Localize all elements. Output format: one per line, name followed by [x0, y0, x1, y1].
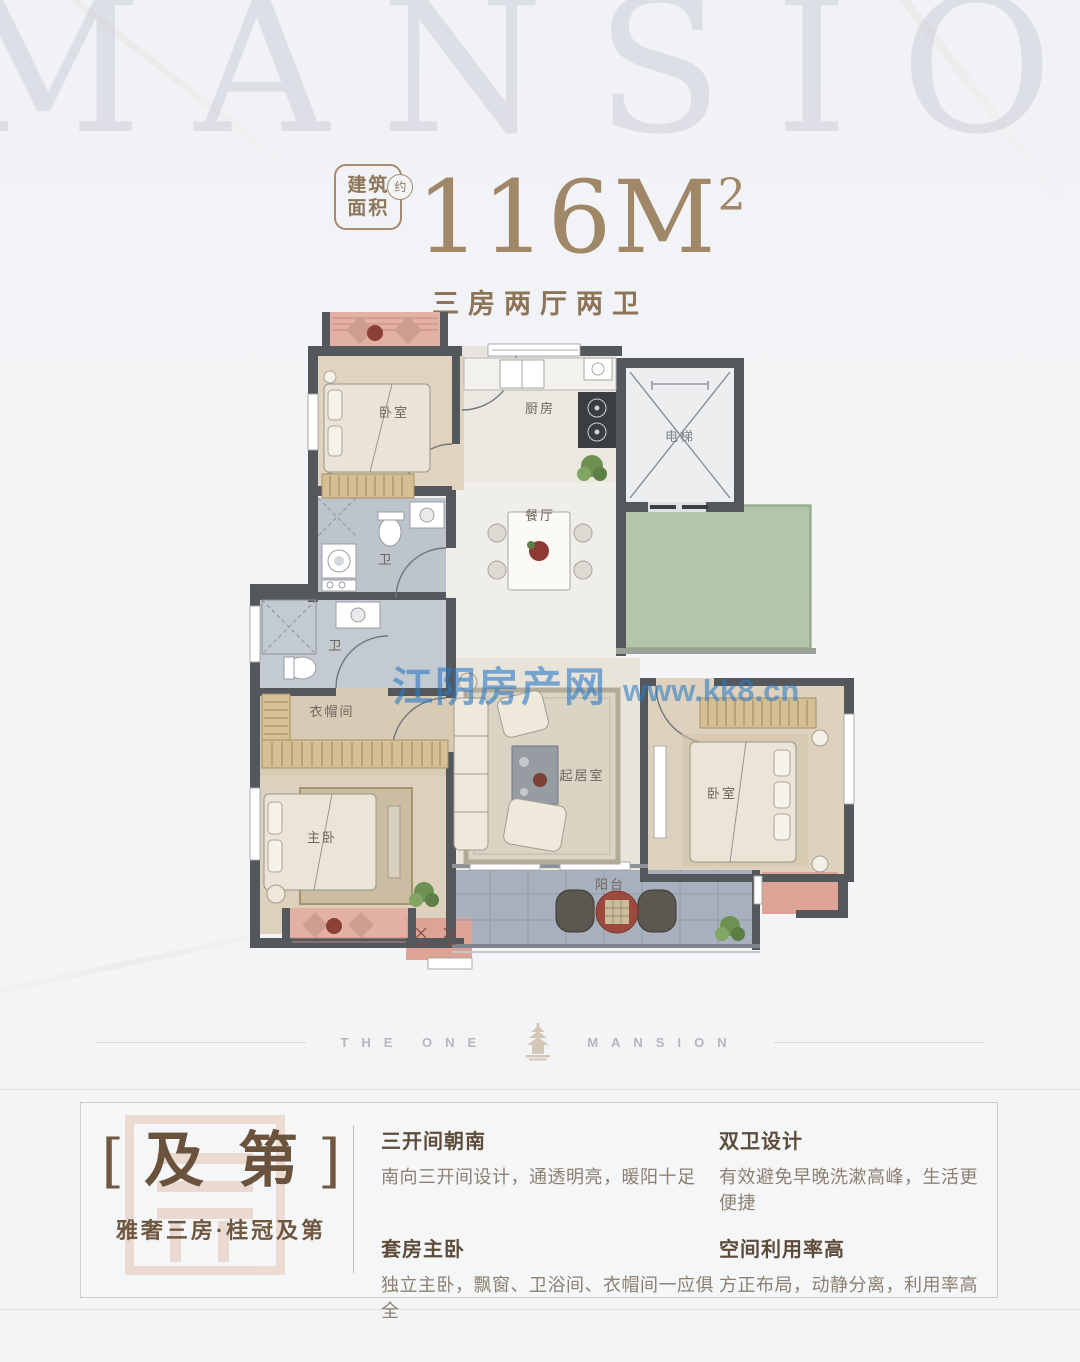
label-balcony: 阳台 [595, 877, 625, 892]
label-bath-upper: 卫 [378, 552, 393, 567]
project-tagline: 雅奢三房·桂冠及第 [95, 1213, 347, 1245]
area-value: 116M2 [416, 150, 745, 264]
background-watermark-text: MANSION [0, 0, 1080, 175]
vertical-divider [353, 1125, 354, 1273]
bracket-open: [ [101, 1125, 124, 1197]
feature-item: 双卫设计 有效避免早晚洗漱高峰，生活更便捷 [719, 1125, 981, 1215]
bracket-close: ] [318, 1125, 341, 1197]
label-bedroom-right: 卧室 [707, 786, 737, 801]
feature-desc: 有效避免早晚洗漱高峰，生活更便捷 [719, 1163, 981, 1215]
label-bedroom-top: 卧室 [379, 405, 409, 420]
badge-line2: 面积 [347, 197, 389, 220]
brand-text-left: THE ONE [340, 1035, 489, 1050]
divider-line-top [0, 1089, 1080, 1090]
feature-title: 空间利用率高 [719, 1233, 981, 1262]
feature-desc: 独立主卧，飘窗、卫浴间、衣帽间一应俱全 [381, 1271, 719, 1323]
feature-desc: 方正布局，动静分离，利用率高 [719, 1271, 981, 1297]
approx-circle: 约 [387, 174, 413, 200]
poster-page: MANSION 建筑 面积 约 116M2 三房两厅两卫 [0, 0, 1080, 1362]
brand-line-right [774, 1042, 984, 1043]
brand-line-left [96, 1042, 306, 1043]
brand-band: THE ONE MANSION [0, 1022, 1080, 1062]
feature-item: 三开间朝南 南向三开间设计，通透明亮，暖阳十足 [381, 1125, 719, 1215]
pagoda-icon [523, 1022, 553, 1062]
feature-desc: 南向三开间设计，通透明亮，暖阳十足 [381, 1163, 719, 1189]
area-badge: 建筑 面积 约 [334, 164, 402, 230]
feature-title: 三开间朝南 [381, 1125, 719, 1154]
label-living: 起居室 [559, 768, 604, 783]
label-elevator: 电梯 [665, 429, 695, 444]
header: 建筑 面积 约 116M2 三房两厅两卫 [0, 150, 1080, 321]
label-master-bedroom: 主卧 [307, 830, 337, 845]
feature-title: 套房主卧 [381, 1233, 719, 1262]
project-name-block: [ 及第 ] 雅奢三房·桂冠及第 [95, 1125, 347, 1245]
badge-line1: 建筑 [347, 174, 389, 197]
feature-item: 套房主卧 独立主卧，飘窗、卫浴间、衣帽间一应俱全 [381, 1233, 719, 1323]
label-bath-lower: 卫 [328, 638, 343, 653]
brand-text-right: MANSION [587, 1035, 739, 1050]
info-panel: [ 及第 ] 雅奢三房·桂冠及第 三开间朝南 南向三开间设计，通透明亮，暖阳十足… [80, 1102, 998, 1298]
label-dining: 餐厅 [525, 508, 555, 523]
feature-item: 空间利用率高 方正布局，动静分离，利用率高 [719, 1233, 981, 1323]
area-superscript: 2 [718, 170, 746, 221]
label-closet: 衣帽间 [309, 704, 354, 719]
floorplan: 卧室 厨房 电梯 餐厅 卫 卫 衣帽间 主卧 起居室 卧室 阳台 [240, 300, 860, 980]
label-kitchen: 厨房 [525, 401, 555, 416]
feature-title: 双卫设计 [719, 1125, 981, 1154]
feature-list: 三开间朝南 南向三开间设计，通透明亮，暖阳十足 双卫设计 有效避免早晚洗漱高峰，… [381, 1125, 981, 1275]
project-name: 及第 [144, 1125, 332, 1197]
